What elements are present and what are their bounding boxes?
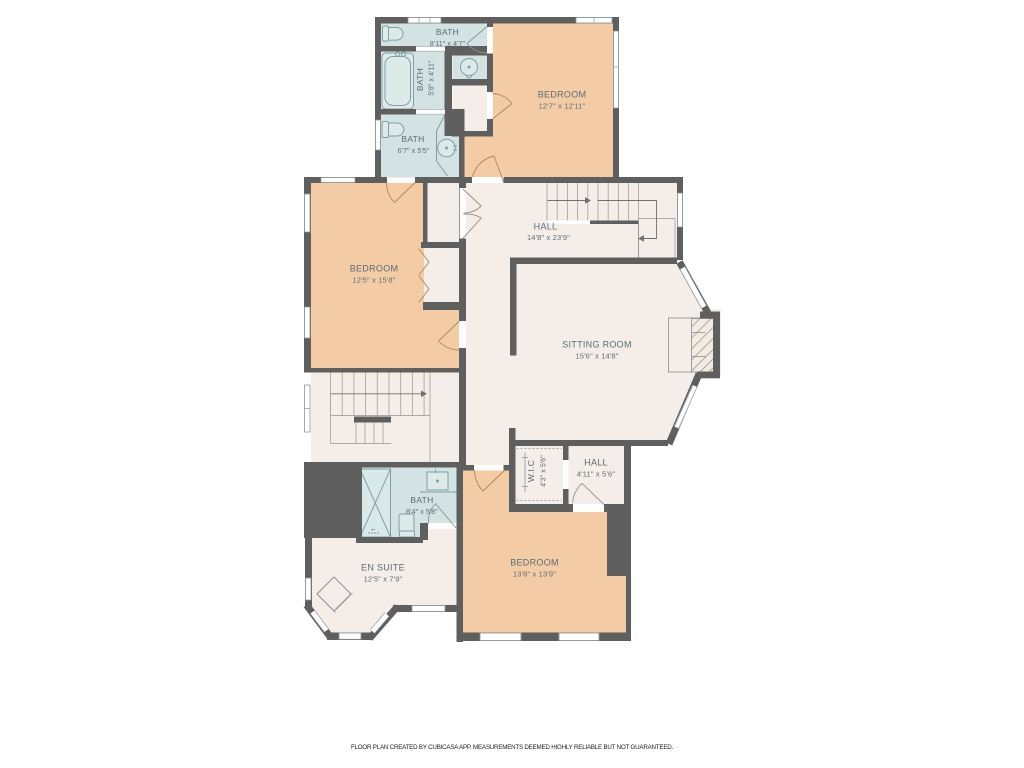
svg-text:BATH: BATH	[401, 134, 424, 144]
svg-text:8'11" x 4'7": 8'11" x 4'7"	[430, 41, 466, 48]
svg-text:BEDROOM: BEDROOM	[350, 264, 399, 274]
svg-text:6'7" x 5'5": 6'7" x 5'5"	[398, 148, 430, 155]
svg-text:12'5" x 15'8": 12'5" x 15'8"	[352, 276, 395, 285]
svg-text:13'8" x 13'9": 13'8" x 13'9"	[513, 570, 556, 579]
svg-text:SITTING ROOM: SITTING ROOM	[562, 340, 632, 350]
svg-text:EN SUITE: EN SUITE	[361, 563, 405, 573]
svg-text:BEDROOM: BEDROOM	[538, 90, 587, 100]
svg-text:W.I.C: W.I.C	[526, 460, 536, 482]
svg-text:FLOOR PLAN CREATED BY CUBICASA: FLOOR PLAN CREATED BY CUBICASA APP. MEAS…	[351, 744, 674, 751]
svg-text:BATH: BATH	[415, 68, 425, 91]
svg-text:5'8" x 4'11": 5'8" x 4'11"	[429, 60, 436, 96]
svg-text:8'4" x 5'8": 8'4" x 5'8"	[406, 509, 438, 516]
svg-text:12'7" x 12'11": 12'7" x 12'11"	[539, 102, 586, 111]
svg-text:4'3" x 5'6": 4'3" x 5'6"	[541, 455, 548, 487]
svg-text:BEDROOM: BEDROOM	[510, 558, 559, 568]
svg-text:BATH: BATH	[410, 495, 433, 505]
svg-text:12'5" x 7'9": 12'5" x 7'9"	[364, 575, 403, 584]
svg-text:14'8" x 23'9": 14'8" x 23'9"	[527, 233, 570, 242]
svg-text:BATH: BATH	[436, 27, 459, 37]
svg-text:4'11" x 5'6": 4'11" x 5'6"	[577, 470, 615, 479]
svg-text:15'6" x 14'8": 15'6" x 14'8"	[575, 352, 618, 361]
svg-text:HALL: HALL	[584, 458, 608, 468]
svg-text:HALL: HALL	[534, 222, 558, 232]
